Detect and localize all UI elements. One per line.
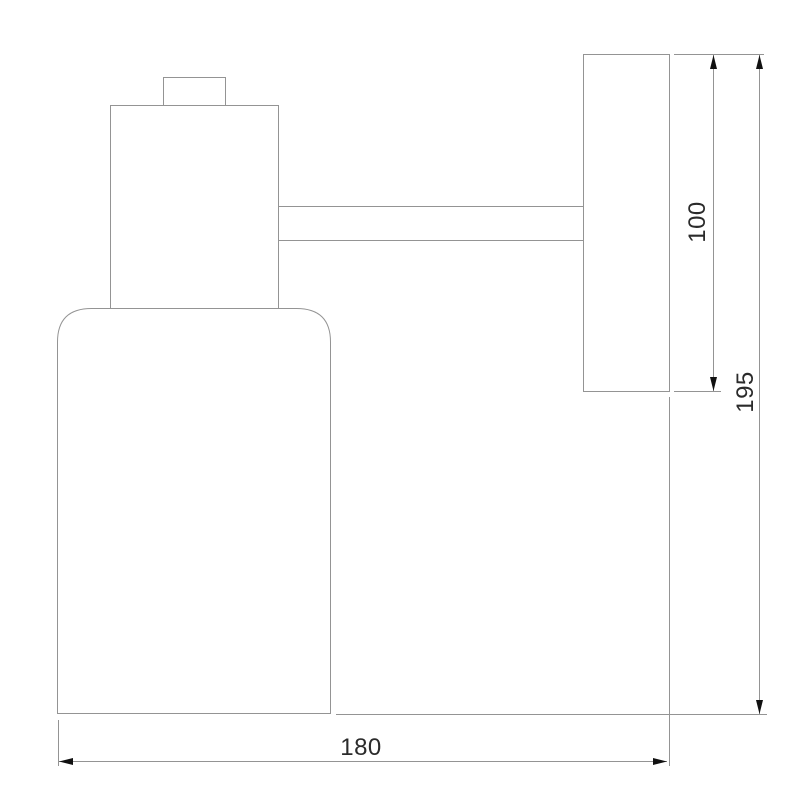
arrowhead-up-icon — [710, 55, 717, 69]
technical-drawing-canvas: 100 195 180 — [0, 0, 804, 804]
dimension-label-overall-width: 180 — [340, 734, 382, 761]
dimension-label-overall-height: 195 — [732, 371, 759, 413]
dimension-label-plate-height: 100 — [684, 201, 711, 243]
lamp-fixture — [58, 55, 670, 714]
arrowhead-up-icon — [756, 55, 763, 69]
dimension-plate-height: 100 — [674, 55, 764, 392]
dimension-overall-height: 195 — [336, 55, 767, 715]
arrowhead-left-icon — [59, 758, 73, 765]
wall-lamp-dimension-drawing: 100 195 180 — [0, 0, 804, 804]
lamp-body — [111, 106, 279, 309]
lamp-top-knob — [164, 78, 226, 106]
lamp-shade — [58, 309, 331, 714]
arrowhead-down-icon — [756, 700, 763, 714]
dimension-overall-width: 180 — [59, 397, 670, 766]
wall-mount-plate — [584, 55, 670, 392]
arrowhead-down-icon — [710, 377, 717, 391]
arrowhead-right-icon — [653, 758, 667, 765]
